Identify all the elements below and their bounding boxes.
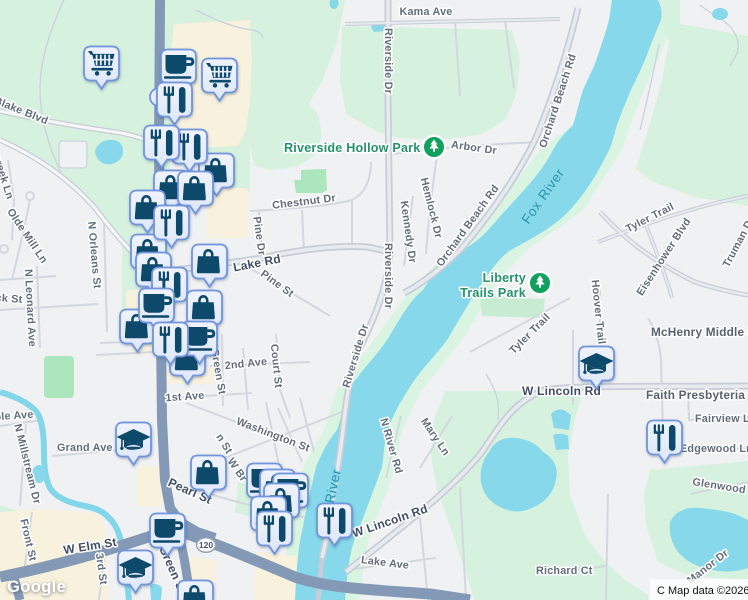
svg-text:Kama Ave: Kama Ave (399, 6, 452, 18)
svg-text:Faith Presbyteria: Faith Presbyteria (646, 388, 745, 402)
svg-text:Grand Ave: Grand Ave (57, 442, 113, 454)
svg-text:120: 120 (199, 540, 213, 550)
svg-text:W Lincoln Rd: W Lincoln Rd (522, 384, 601, 398)
svg-text:Google: Google (7, 578, 66, 596)
svg-text:Riverside Dr: Riverside Dr (382, 243, 394, 310)
svg-text:ck St: ck St (0, 292, 23, 306)
svg-text:Liberty: Liberty (483, 271, 526, 285)
svg-text:McHenry Middle Sc: McHenry Middle Sc (651, 325, 748, 339)
svg-text:Riverside Hollow Park: Riverside Hollow Park (284, 141, 421, 155)
svg-text:Fairview Ln: Fairview Ln (695, 413, 748, 425)
svg-text:Edgewood Ln: Edgewood Ln (680, 443, 748, 455)
svg-text:Trails Park: Trails Park (460, 286, 527, 300)
svg-text:C Map data ©2026: C Map data ©2026 (657, 585, 748, 597)
svg-text:Richard Ct: Richard Ct (536, 565, 593, 577)
svg-text:Riverside Dr: Riverside Dr (382, 28, 394, 95)
